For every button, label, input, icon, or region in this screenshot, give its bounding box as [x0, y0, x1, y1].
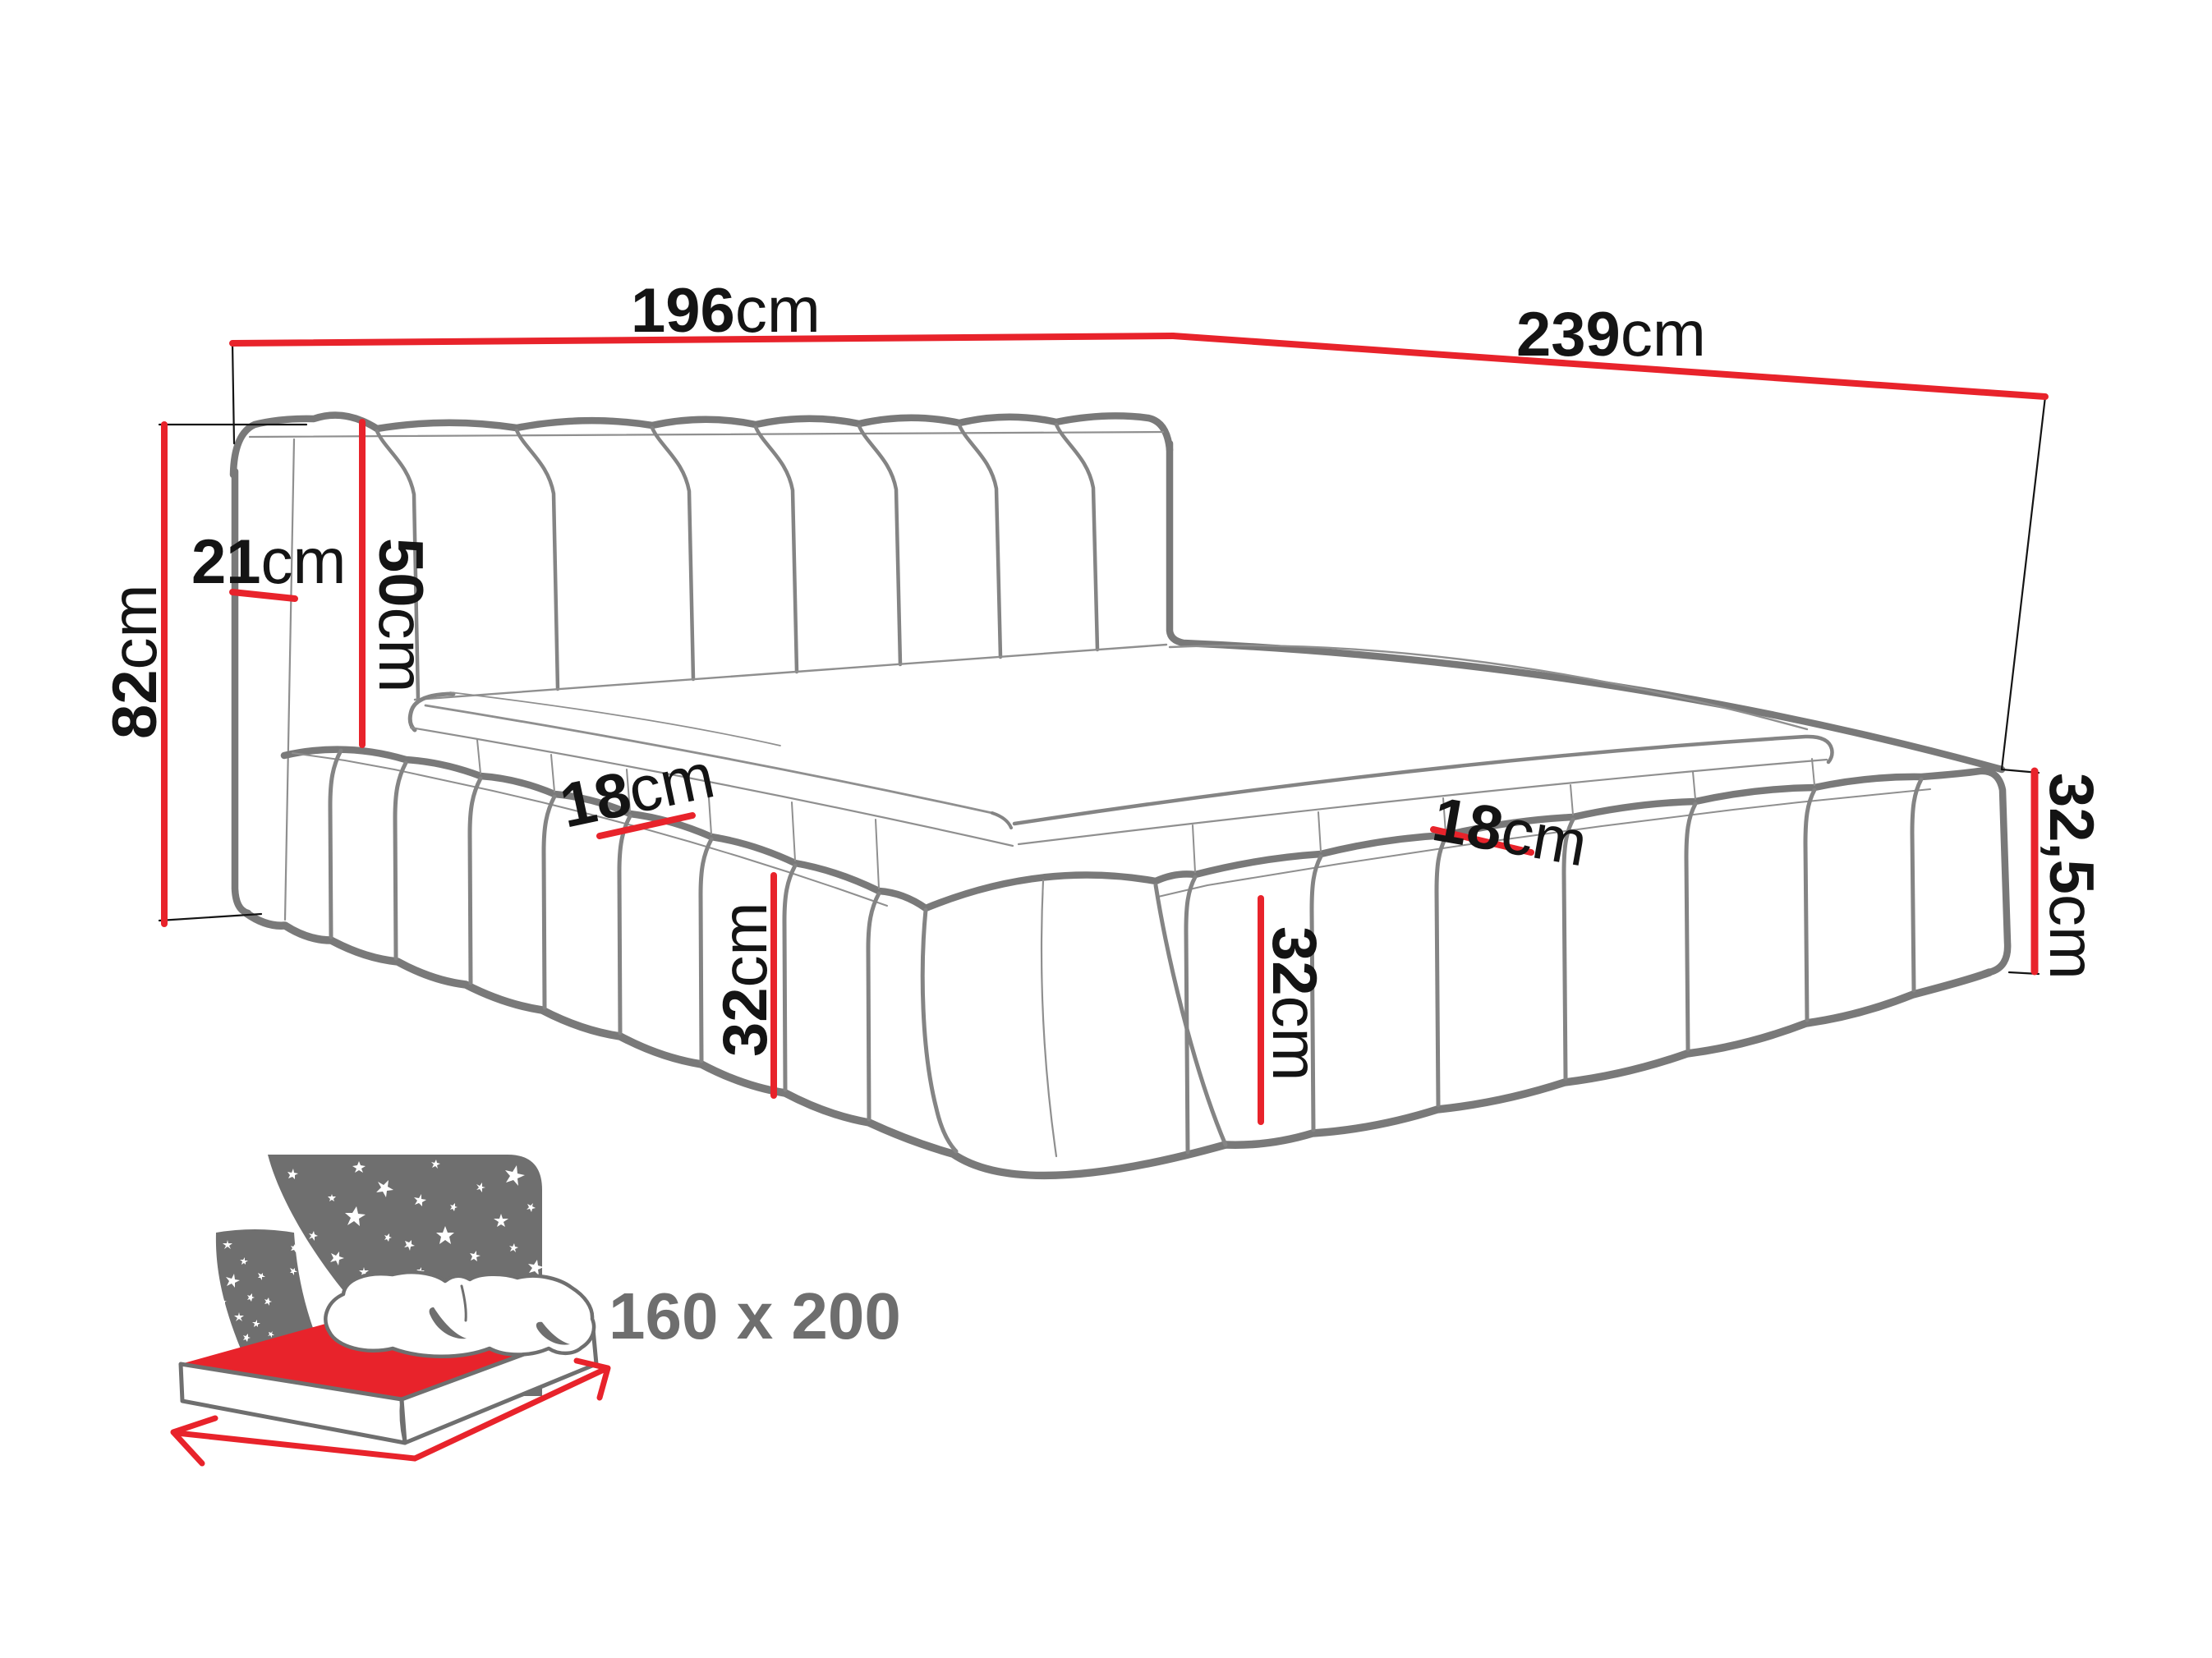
svg-text:32,5cm: 32,5cm [2036, 773, 2109, 980]
svg-text:32cm: 32cm [708, 902, 780, 1057]
svg-text:196cm: 196cm [631, 273, 821, 346]
svg-text:50cm: 50cm [366, 538, 438, 693]
svg-text:82cm: 82cm [98, 584, 170, 739]
svg-text:32cm: 32cm [1259, 926, 1331, 1082]
svg-text:21cm: 21cm [191, 525, 347, 597]
svg-text:239cm: 239cm [1516, 297, 1706, 370]
svg-text:160 x 200: 160 x 200 [609, 1279, 901, 1353]
